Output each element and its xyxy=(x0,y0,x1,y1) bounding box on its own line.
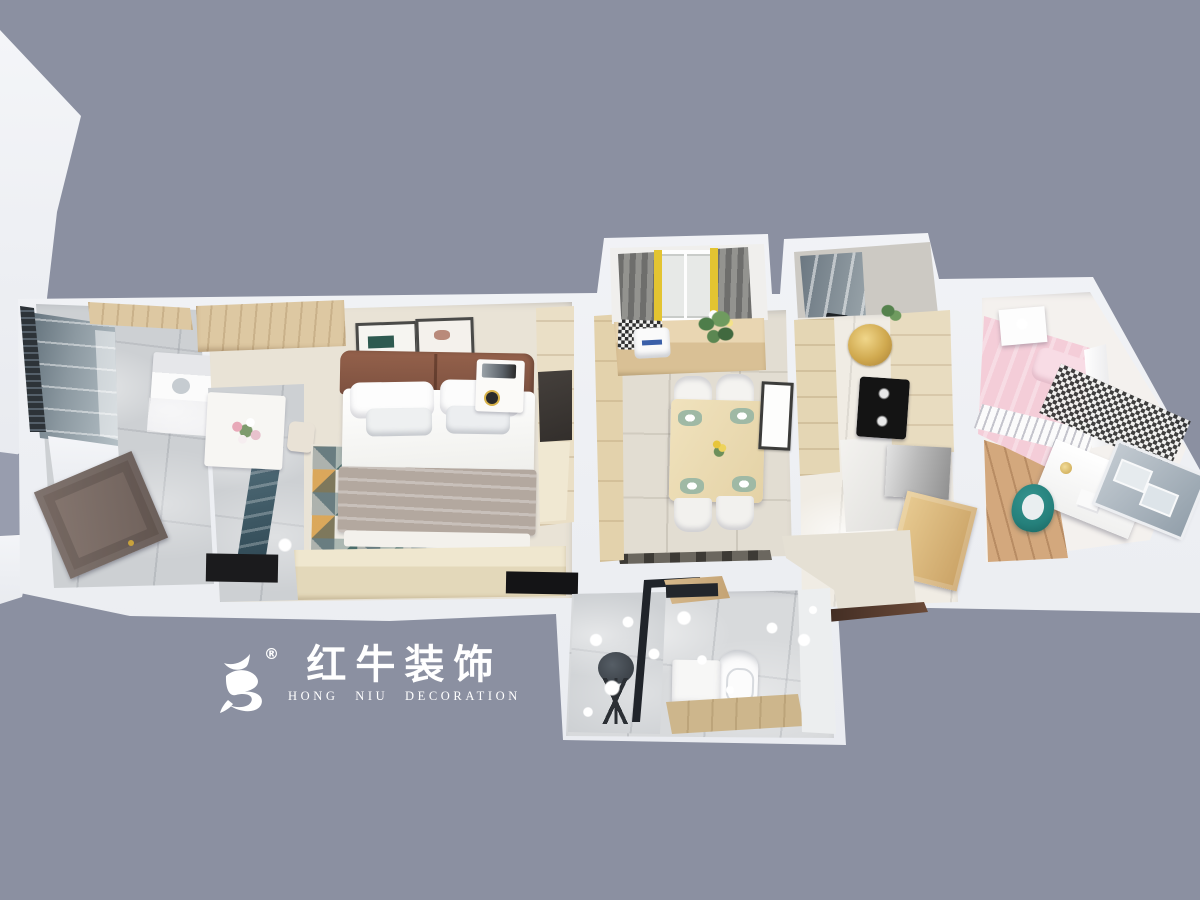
vanity-stool xyxy=(287,421,316,454)
gold-serving-tray xyxy=(848,324,892,366)
watermark-logo: ® 红牛装饰 HONG NIU DECORATION xyxy=(216,645,496,725)
logo-title-cn: 红牛装饰 xyxy=(306,645,502,685)
kitchen-counter-left xyxy=(794,318,840,476)
place-setting-4 xyxy=(732,476,756,492)
place-setting-1 xyxy=(678,410,702,426)
bed-blanket xyxy=(337,466,536,535)
bed-foot-sheet xyxy=(344,530,530,549)
table-flowers xyxy=(708,436,730,460)
kitchen-plant xyxy=(876,298,906,330)
basket-label xyxy=(642,339,662,345)
wall-art-right-motif xyxy=(434,330,450,341)
registered-mark: ® xyxy=(264,645,279,663)
flower-bouquet xyxy=(224,412,268,454)
tv-cabinet-lower xyxy=(538,442,570,522)
laundry-counter xyxy=(147,398,213,436)
entry-door-handle xyxy=(128,540,134,546)
door-mat-entry xyxy=(206,553,278,582)
dining-chair-bottom-left xyxy=(674,498,712,532)
place-setting-3 xyxy=(680,478,704,494)
dining-chair-bottom-right xyxy=(716,496,754,530)
logo-subtitle-en: HONG NIU DECORATION xyxy=(288,689,521,704)
nightstand-clutter xyxy=(482,363,516,378)
shower-stand-legs xyxy=(590,678,642,724)
light-flare-1 xyxy=(278,538,292,552)
hanging-towel-dark xyxy=(666,583,718,598)
alarm-clock xyxy=(486,392,498,404)
floorplan-scene: ® 红牛装饰 HONG NIU DECORATION xyxy=(0,0,1200,900)
light-flare-2 xyxy=(1016,318,1028,330)
tv-screen xyxy=(538,370,574,442)
induction-cooktop xyxy=(856,376,910,439)
refrigerator xyxy=(885,444,952,499)
bull-swoosh-icon: ® xyxy=(216,649,280,715)
dressing-shelf xyxy=(196,300,346,352)
door-mat-hall xyxy=(506,571,578,594)
balcony-window-mullion xyxy=(684,252,687,320)
wall-art-left-motif xyxy=(368,336,394,349)
place-setting-2 xyxy=(730,408,754,424)
bed-cushion-left xyxy=(366,407,432,436)
balcony-plant xyxy=(692,304,740,354)
washer-door xyxy=(172,378,190,394)
dining-wall-frame xyxy=(758,381,794,451)
desk-lamp xyxy=(1060,462,1072,474)
